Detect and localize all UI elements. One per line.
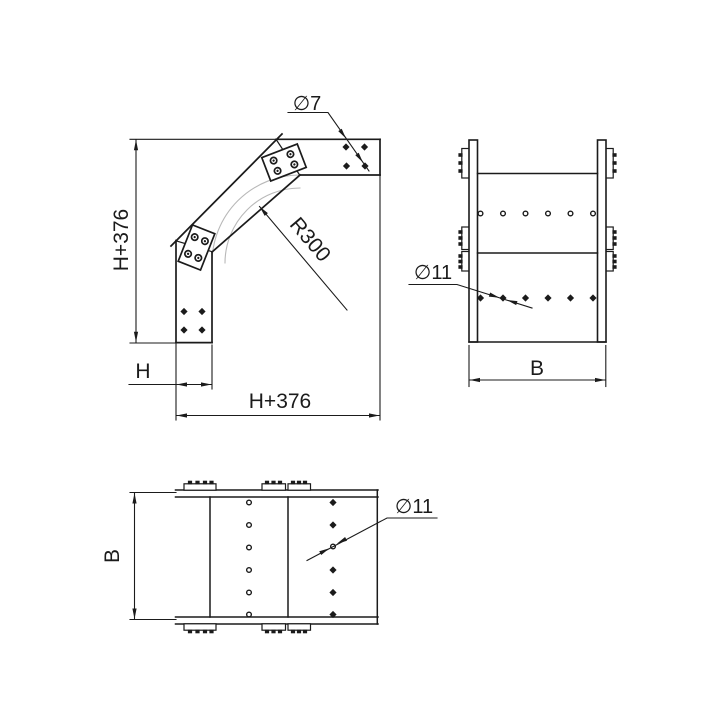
front-view-rails	[469, 140, 606, 342]
lower-connector-plate	[178, 225, 215, 270]
bottom-view-diamond-holes	[329, 499, 336, 618]
side-view-dimensions	[129, 113, 380, 421]
coupler-tabs-right	[606, 149, 616, 272]
width-dim-label: H+376	[249, 390, 311, 413]
height-dim-label: H+376	[110, 209, 133, 271]
front-view: ∅11 B	[409, 140, 617, 387]
front-view-round-holes	[478, 211, 595, 216]
bottom-height-dim-label: B	[101, 549, 124, 563]
front-dia11-label: ∅11	[414, 262, 452, 284]
technical-drawing-page: ∅7 H+376 H H+376 R300	[0, 0, 724, 724]
leg-width-dim-label: H	[135, 360, 150, 383]
dia7-label: ∅7	[293, 93, 322, 115]
bottom-view: ∅11 B	[101, 481, 437, 634]
bottom-view-tabs-bottom	[184, 624, 311, 634]
side-view: ∅7 H+376 H H+376 R300	[110, 93, 380, 420]
front-view-web	[469, 174, 606, 343]
radius-label: R300	[285, 213, 335, 266]
bend-radius-arcs	[212, 175, 300, 263]
side-view-arrowheads	[134, 129, 380, 418]
bottom-view-tabs-top	[184, 481, 311, 490]
bottom-view-rails	[176, 490, 379, 624]
drawing-svg: ∅7 H+376 H H+376 R300	[0, 0, 724, 724]
bottom-view-round-holes	[247, 500, 252, 617]
leg-holes	[180, 308, 205, 334]
bottom-view-dimensions	[130, 493, 437, 620]
bottom-dia11-label: ∅11	[395, 496, 433, 518]
front-width-dim-label: B	[530, 357, 544, 380]
front-view-dimensions	[409, 285, 606, 387]
coupler-tabs-left	[458, 149, 468, 272]
